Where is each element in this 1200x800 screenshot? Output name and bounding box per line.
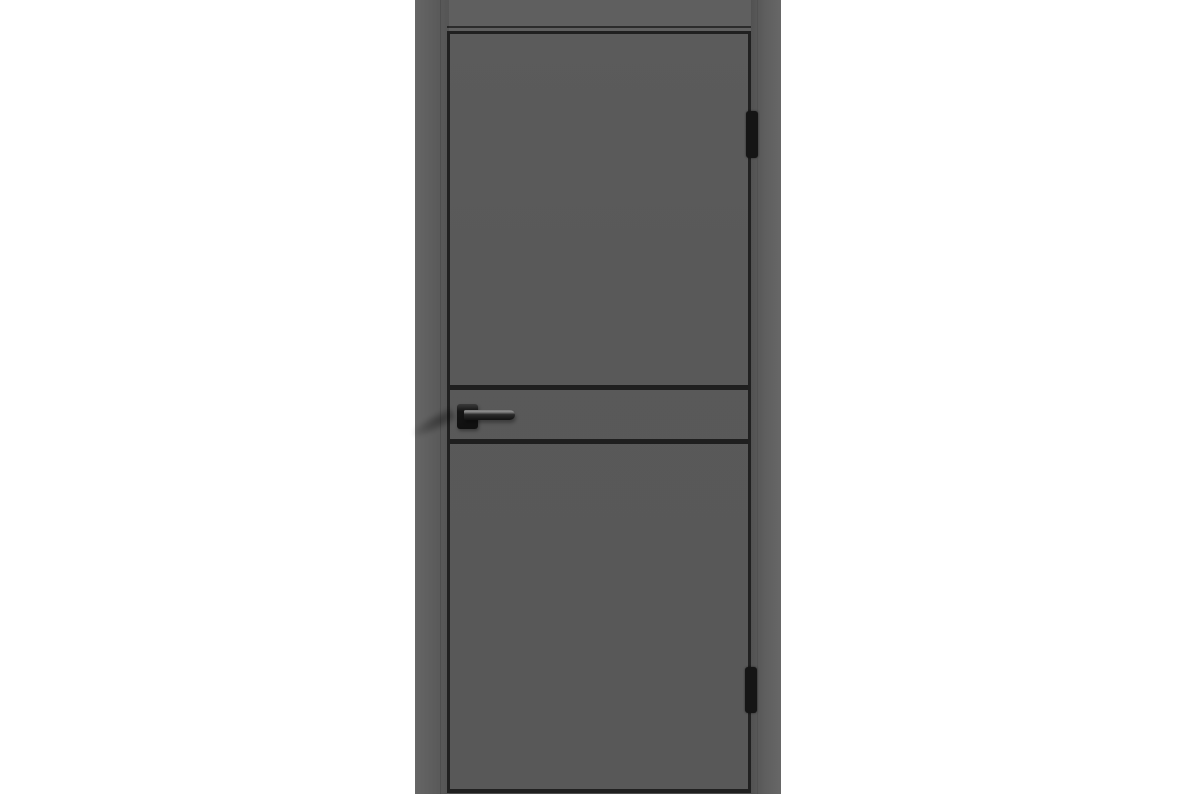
- top-hinge: [746, 111, 758, 158]
- door-frame-left-jamb: [415, 0, 449, 794]
- bottom-hinge: [745, 667, 757, 713]
- groove-line-lower: [450, 439, 748, 444]
- groove-line-upper: [450, 385, 748, 390]
- frame-seam-left: [440, 0, 441, 794]
- lintel-shadow-line: [447, 26, 751, 28]
- product-photo-door: [0, 0, 1200, 800]
- door-handle-lever: [464, 410, 515, 420]
